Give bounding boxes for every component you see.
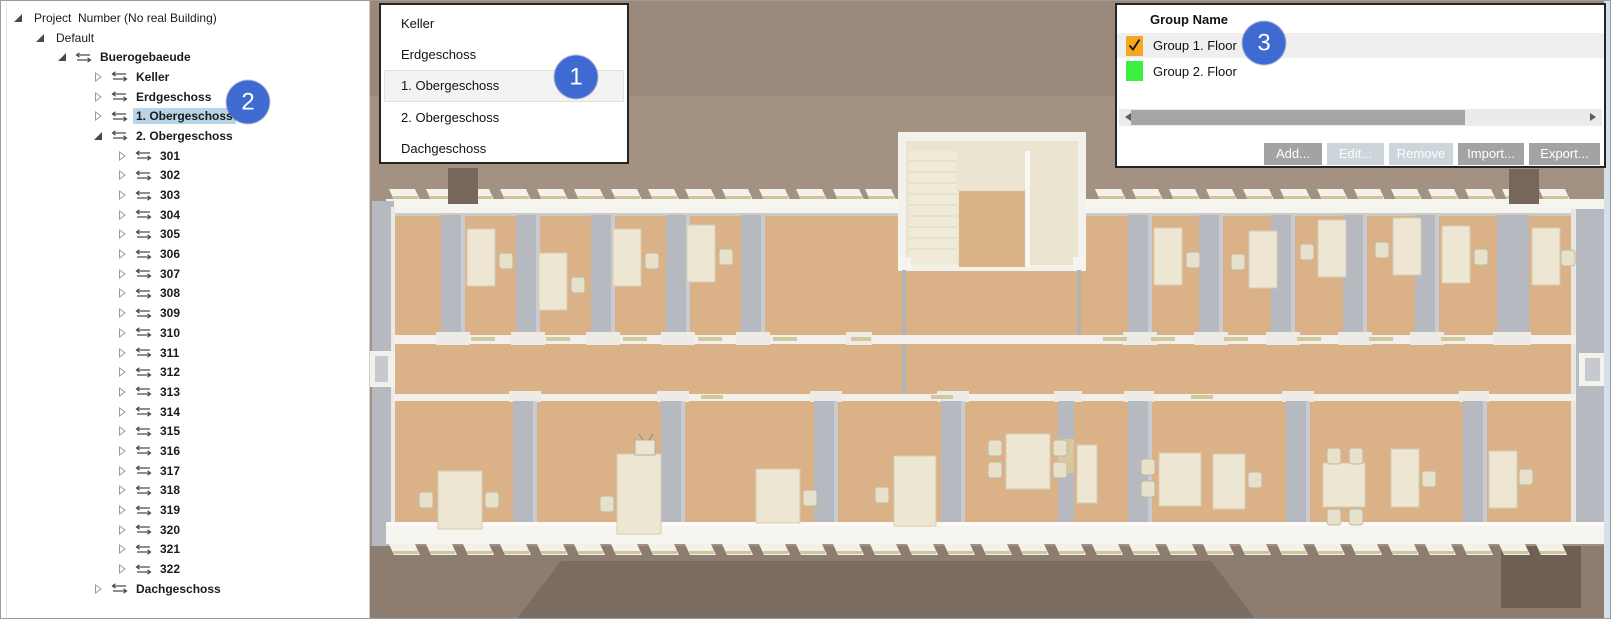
tree-item-313[interactable]: 313 [1,382,369,402]
swap-arrows-icon [135,445,152,456]
collapsed-expander-icon[interactable] [117,407,127,417]
swap-arrows-icon [135,386,152,397]
tree-item-308[interactable]: 308 [1,284,369,304]
floor-list-item-dachgeschoss[interactable]: Dachgeschoss [384,133,624,164]
swap-arrows-icon [135,288,152,299]
tree-item-label: 318 [157,482,183,498]
tree-item-317[interactable]: 317 [1,461,369,481]
callout-circle-3: 3 [1243,22,1286,65]
scroll-left-arrow-icon[interactable] [1121,113,1131,121]
expanded-expander-icon[interactable] [93,131,103,141]
swap-arrows-icon [135,544,152,555]
tree-item-label: 310 [157,325,183,341]
collapsed-expander-icon[interactable] [117,348,127,358]
tree-item-label: 321 [157,541,183,557]
swap-arrows-icon [111,583,128,594]
tree-item-default[interactable]: Default [1,28,369,48]
project-tree-panel: Project Number (No real Building)Default… [1,1,370,618]
swap-arrows-icon [135,327,152,338]
swap-arrows-icon [111,111,128,122]
tree-item-314[interactable]: 314 [1,402,369,422]
group-panel: Group Name Group 1. FloorGroup 2. Floor … [1115,3,1606,168]
collapsed-expander-icon[interactable] [117,426,127,436]
tree-item-307[interactable]: 307 [1,264,369,284]
tree-item-label: 316 [157,443,183,459]
tree-item-label: 301 [157,148,183,164]
swap-arrows-icon [135,426,152,437]
swap-arrows-icon [111,130,128,141]
tree-item-301[interactable]: 301 [1,146,369,166]
collapsed-expander-icon[interactable] [93,92,103,102]
collapsed-expander-icon[interactable] [117,308,127,318]
swap-arrows-icon [111,91,128,102]
tree-item-label: 312 [157,364,183,380]
scrollbar-thumb[interactable] [1131,110,1465,125]
swap-arrows-icon [135,308,152,319]
tree-item-320[interactable]: 320 [1,520,369,540]
tree-item-309[interactable]: 309 [1,303,369,323]
collapsed-expander-icon[interactable] [93,584,103,594]
swap-arrows-icon [135,524,152,535]
group-checkbox-checked[interactable] [1126,36,1143,56]
collapsed-expander-icon[interactable] [117,525,127,535]
swap-arrows-icon [135,465,152,476]
tree-item-label: 314 [157,404,183,420]
group-checkbox-unchecked[interactable] [1126,61,1143,81]
tree-item-1-obergeschoss[interactable]: 1. Obergeschoss [1,106,369,126]
group-row-group-2-floor[interactable]: Group 2. Floor [1117,58,1604,83]
tree-item-label: 319 [157,502,183,518]
tree-item-label: Erdgeschoss [133,89,214,105]
application-window: Project Number (No real Building)Default… [0,0,1611,619]
callout-circle-1: 1 [555,56,598,99]
collapsed-expander-icon[interactable] [117,367,127,377]
swap-arrows-icon [135,268,152,279]
callout-circle-2: 2 [227,81,270,124]
tree-item-label: 2. Obergeschoss [133,128,236,144]
swap-arrows-icon [135,485,152,496]
swap-arrows-icon [135,406,152,417]
collapsed-expander-icon[interactable] [117,544,127,554]
collapsed-expander-icon[interactable] [117,151,127,161]
group-panel-header: Group Name [1150,12,1604,27]
collapsed-expander-icon[interactable] [93,111,103,121]
tree-item-project-number-no-real-building[interactable]: Project Number (No real Building) [1,8,369,28]
collapsed-expander-icon[interactable] [117,564,127,574]
add-button[interactable]: Add... [1264,143,1322,165]
swap-arrows-icon [111,71,128,82]
collapsed-expander-icon[interactable] [117,269,127,279]
tree-item-label: 303 [157,187,183,203]
expanded-expander-icon[interactable] [13,13,23,23]
tree-item-304[interactable]: 304 [1,205,369,225]
collapsed-expander-icon[interactable] [117,446,127,456]
swap-arrows-icon [135,505,152,516]
tree-item-321[interactable]: 321 [1,540,369,560]
tree-item-label: 304 [157,207,183,223]
swap-arrows-icon [135,209,152,220]
tree-item-erdgeschoss[interactable]: Erdgeschoss [1,87,369,107]
tree-item-label: 1. Obergeschoss [133,108,236,124]
tree-item-316[interactable]: 316 [1,441,369,461]
collapsed-expander-icon[interactable] [93,72,103,82]
expanded-expander-icon[interactable] [57,52,67,62]
collapsed-expander-icon[interactable] [117,485,127,495]
collapsed-expander-icon[interactable] [117,387,127,397]
tree-item-dachgeschoss[interactable]: Dachgeschoss [1,579,369,599]
expanded-expander-icon[interactable] [35,33,45,43]
swap-arrows-icon [135,229,152,240]
tree-item-319[interactable]: 319 [1,500,369,520]
tree-item-label: 302 [157,167,183,183]
tree-item-310[interactable]: 310 [1,323,369,343]
swap-arrows-icon [135,190,152,201]
tree-item-315[interactable]: 315 [1,421,369,441]
collapsed-expander-icon[interactable] [117,249,127,259]
group-row-label: Group 1. Floor [1153,38,1237,53]
tree-item-306[interactable]: 306 [1,244,369,264]
tree-item-label: 306 [157,246,183,262]
group-panel-buttons: Add...Edit...RemoveImport...Export... [1264,143,1600,165]
remove-button[interactable]: Remove [1389,143,1453,165]
tree-item-label: 313 [157,384,183,400]
tree-item-label: 322 [157,561,183,577]
tree-item-label: Dachgeschoss [133,581,224,597]
edit-button[interactable]: Edit... [1327,143,1384,165]
tree-item-label: 309 [157,305,183,321]
tree-item-label: 320 [157,522,183,538]
collapsed-expander-icon[interactable] [117,466,127,476]
collapsed-expander-icon[interactable] [117,328,127,338]
tree-item-322[interactable]: 322 [1,559,369,579]
swap-arrows-icon [135,170,152,181]
floor-list-item-keller[interactable]: Keller [384,8,624,39]
group-horizontal-scrollbar[interactable] [1119,109,1602,126]
collapsed-expander-icon[interactable] [117,190,127,200]
tree-item-label: 308 [157,285,183,301]
tree-item-label: Project Number (No real Building) [31,10,220,26]
group-row-label: Group 2. Floor [1153,64,1237,79]
tree-item-318[interactable]: 318 [1,481,369,501]
collapsed-expander-icon[interactable] [117,210,127,220]
tree-item-label: Default [53,30,97,46]
tree-item-label: 305 [157,226,183,242]
swap-arrows-icon [135,347,152,358]
collapsed-expander-icon[interactable] [117,170,127,180]
tree-item-label: Buerogebaeude [97,49,194,65]
tree-item-label: 315 [157,423,183,439]
import-button[interactable]: Import... [1458,143,1524,165]
floor-list-item-2-obergeschoss[interactable]: 2. Obergeschoss [384,102,624,133]
swap-arrows-icon [75,52,92,63]
tree-item-311[interactable]: 311 [1,343,369,363]
tree-item-label: 311 [157,345,182,361]
export-button[interactable]: Export... [1529,143,1600,165]
group-row-group-1-floor[interactable]: Group 1. Floor [1117,33,1604,58]
tree-left-divider [6,1,7,618]
scroll-right-arrow-icon[interactable] [1590,113,1600,121]
swap-arrows-icon [135,367,152,378]
tree-item-label: 307 [157,266,183,282]
tree-item-2-obergeschoss[interactable]: 2. Obergeschoss [1,126,369,146]
tree-item-302[interactable]: 302 [1,166,369,186]
group-list: Group 1. FloorGroup 2. Floor [1117,33,1604,84]
collapsed-expander-icon[interactable] [117,229,127,239]
tree-item-303[interactable]: 303 [1,185,369,205]
swap-arrows-icon [135,249,152,260]
swap-arrows-icon [135,150,152,161]
tree-item-305[interactable]: 305 [1,225,369,245]
tree-item-buerogebaeude[interactable]: Buerogebaeude [1,47,369,67]
tree-item-312[interactable]: 312 [1,362,369,382]
swap-arrows-icon [135,564,152,575]
tree-item-label: 317 [157,463,183,479]
collapsed-expander-icon[interactable] [117,505,127,515]
tree-item-label: Keller [133,69,172,85]
tree-item-keller[interactable]: Keller [1,67,369,87]
collapsed-expander-icon[interactable] [117,288,127,298]
project-tree: Project Number (No real Building)Default… [1,8,369,599]
